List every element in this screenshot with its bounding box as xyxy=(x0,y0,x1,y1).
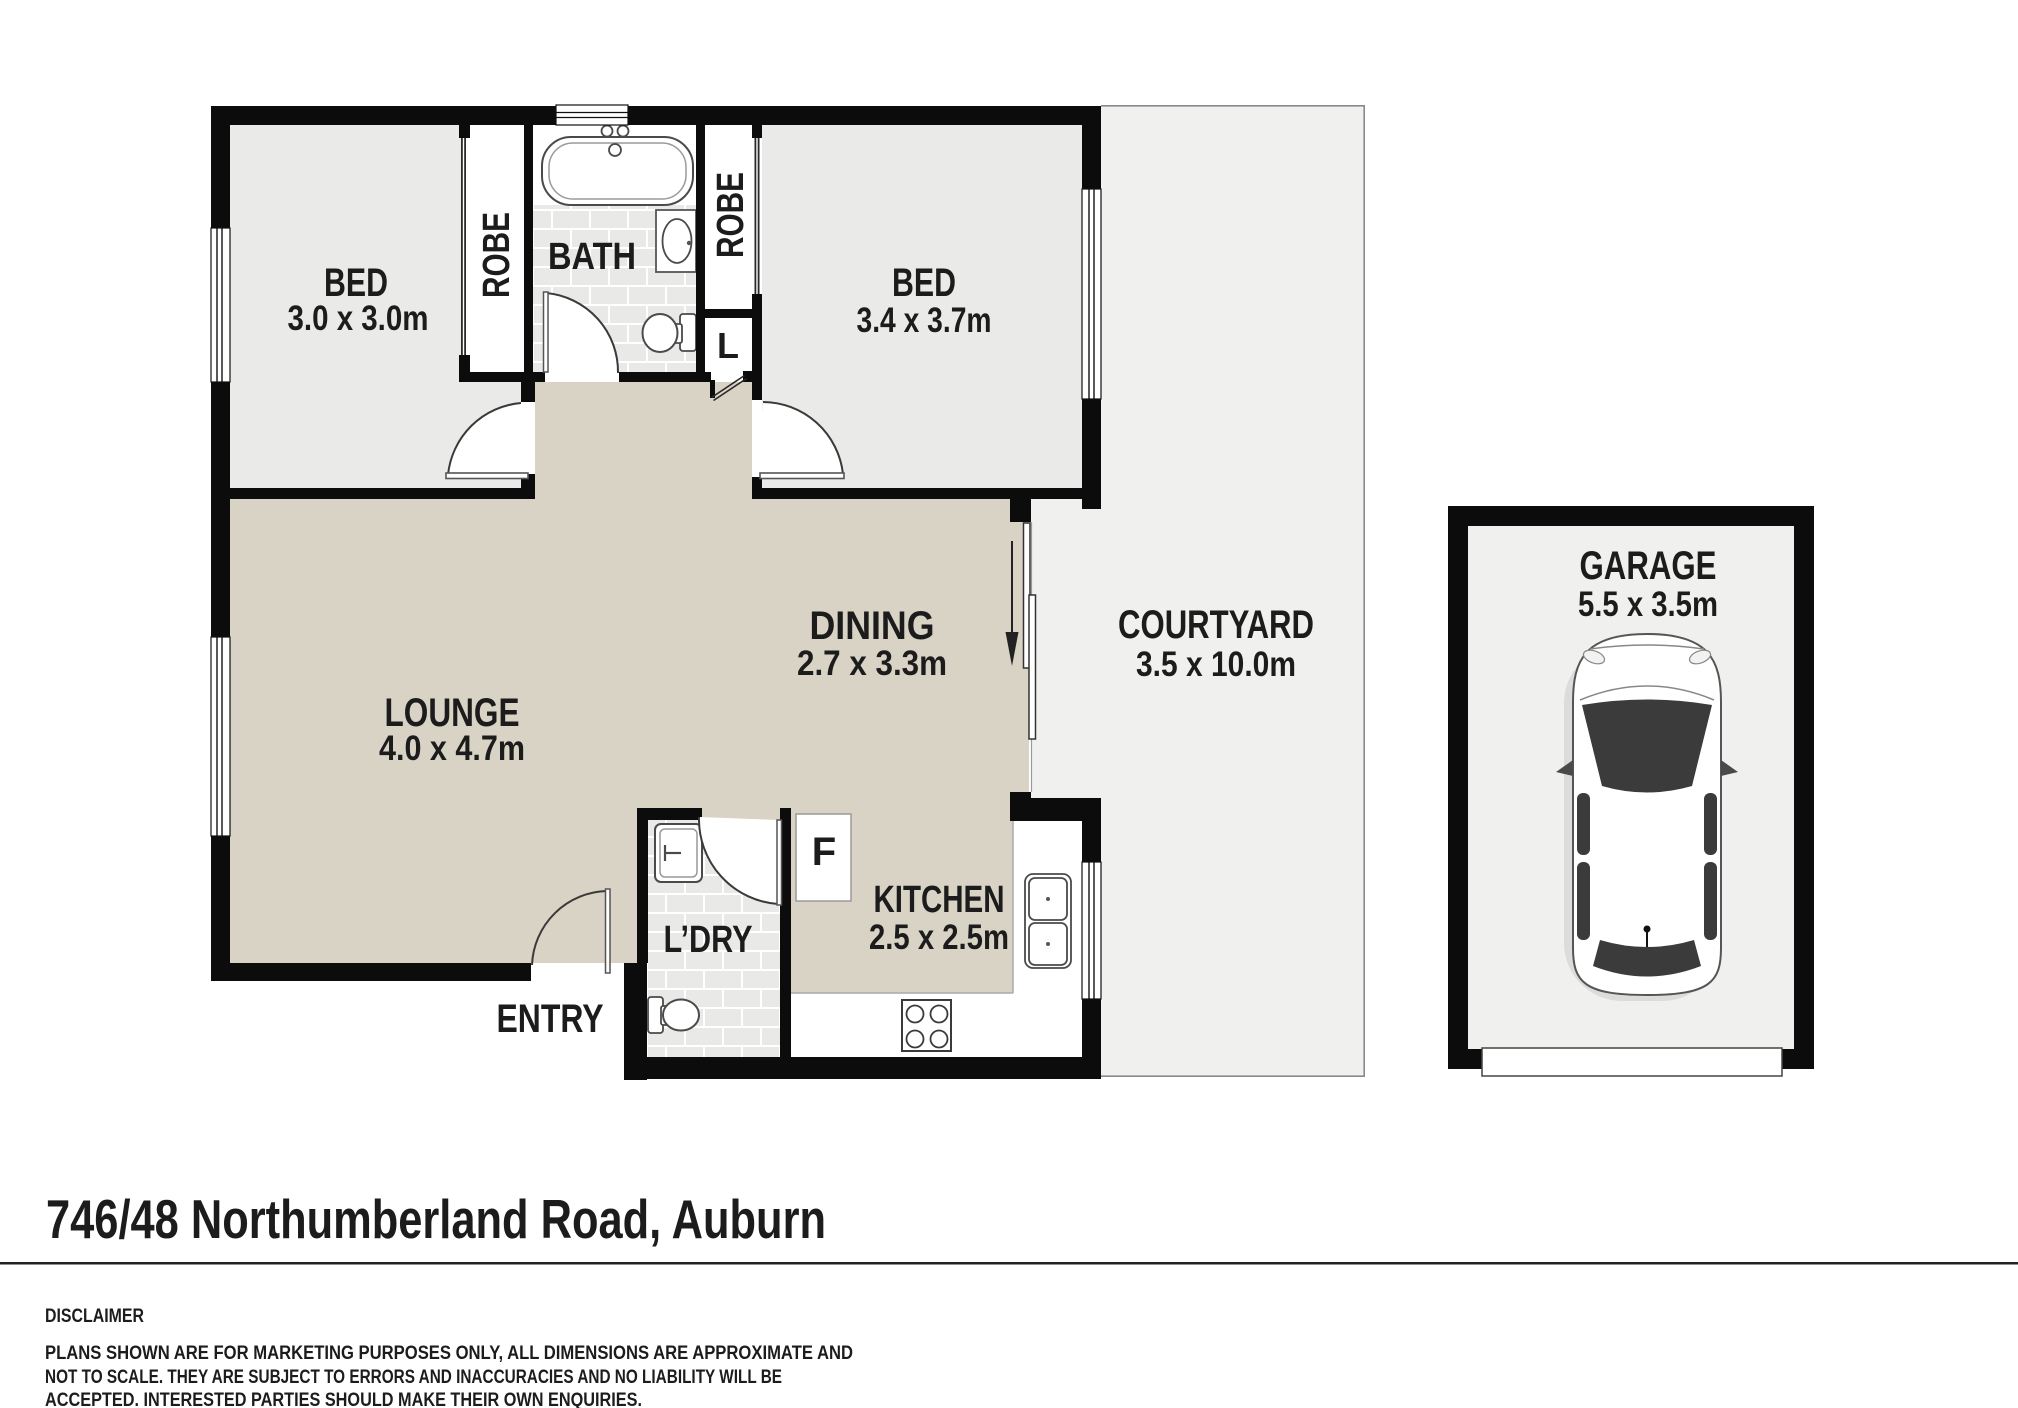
svg-text:NOT TO SCALE. THEY ARE SUBJECT: NOT TO SCALE. THEY ARE SUBJECT TO ERRORS… xyxy=(45,1367,782,1388)
svg-text:ACCEPTED. INTERESTED PARTIES S: ACCEPTED. INTERESTED PARTIES SHOULD MAKE… xyxy=(45,1390,642,1408)
svg-text:BATH: BATH xyxy=(548,236,636,278)
svg-text:F: F xyxy=(812,830,836,874)
svg-text:746/48 Northumberland Road, Au: 746/48 Northumberland Road, Auburn xyxy=(46,1188,826,1250)
svg-text:2.5 x 2.5m: 2.5 x 2.5m xyxy=(869,918,1009,957)
svg-text:3.0 x 3.0m: 3.0 x 3.0m xyxy=(288,299,429,338)
svg-text:PLANS SHOWN ARE FOR MARKETING: PLANS SHOWN ARE FOR MARKETING PURPOSES O… xyxy=(45,1343,853,1364)
svg-text:4.0 x 4.7m: 4.0 x 4.7m xyxy=(379,729,525,768)
svg-text:DINING: DINING xyxy=(810,604,935,648)
svg-text:ROBE: ROBE xyxy=(710,172,752,258)
svg-text:KITCHEN: KITCHEN xyxy=(874,879,1005,921)
svg-text:COURTYARD: COURTYARD xyxy=(1118,603,1314,647)
svg-text:DISCLAIMER: DISCLAIMER xyxy=(45,1306,144,1327)
svg-text:L: L xyxy=(717,325,739,366)
svg-text:L’DRY: L’DRY xyxy=(664,919,753,961)
svg-text:ENTRY: ENTRY xyxy=(497,997,604,1041)
svg-text:3.5 x 10.0m: 3.5 x 10.0m xyxy=(1136,645,1296,684)
svg-text:GARAGE: GARAGE xyxy=(1580,544,1717,588)
svg-text:BED: BED xyxy=(892,261,956,305)
svg-text:ROBE: ROBE xyxy=(476,212,518,298)
svg-text:2.7 x 3.3m: 2.7 x 3.3m xyxy=(797,644,947,683)
svg-text:3.4 x 3.7m: 3.4 x 3.7m xyxy=(857,301,992,340)
svg-text:5.5 x 3.5m: 5.5 x 3.5m xyxy=(1578,585,1718,624)
